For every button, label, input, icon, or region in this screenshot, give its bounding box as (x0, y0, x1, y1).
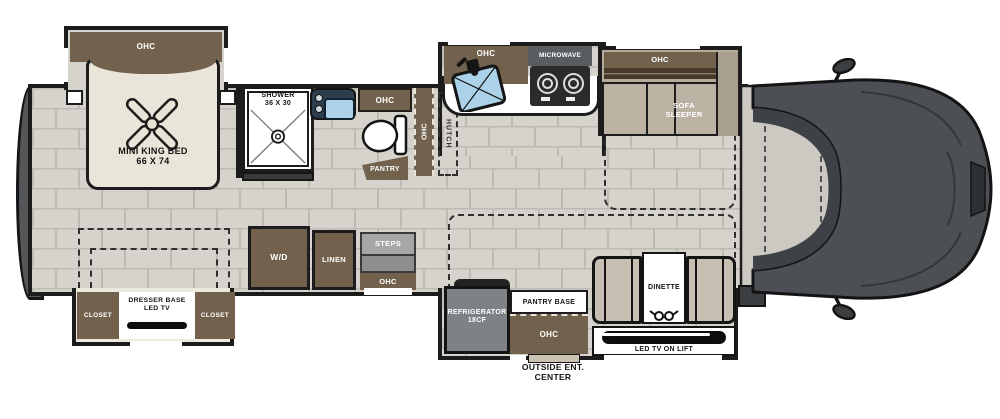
cooktop-knob-icon (566, 97, 575, 101)
entry-door-opening (364, 288, 412, 295)
bath-sink-icon (324, 98, 355, 120)
nightstand-right (219, 90, 236, 105)
kitchen-sink-icon (450, 56, 506, 112)
living-tv-screen (602, 333, 710, 336)
hall-ohc-cabinet: OHC (414, 88, 434, 176)
bath-vanity (310, 88, 356, 120)
cooktop (530, 66, 590, 106)
dresser-line2: LED TV (119, 305, 195, 313)
microwave-cabinet: MICROWAVE (528, 46, 592, 66)
entry-step-lower (360, 256, 416, 273)
burner-icon (563, 73, 584, 94)
shower-sill (242, 172, 314, 181)
nightstand-left (66, 90, 83, 105)
bath-ohc-cabinet: OHC (358, 88, 412, 112)
refrigerator: REFRIGERATOR 18CF (444, 286, 510, 354)
outside-line2: CENTER (498, 373, 608, 383)
dresser-slide-window (130, 341, 182, 347)
sofa-backrest (604, 68, 716, 82)
sofa-armrest (716, 52, 738, 136)
entry-steps: STEPS (360, 232, 416, 256)
galley-window (510, 355, 526, 362)
hall-ohc-label: OHC (416, 88, 432, 176)
faucet-knob-icon (315, 105, 323, 113)
tv-lift-label: LED TV ON LIFT (594, 346, 734, 354)
shower-label: SHOWER 36 X 30 (242, 92, 314, 108)
closet-right: CLOSET (195, 292, 235, 339)
bedroom-tv-icon (127, 322, 187, 329)
bed-slide-travel-outline-inner (90, 248, 218, 288)
shower-name: SHOWER (242, 92, 314, 100)
bedroom-slide-window-left (62, 48, 68, 82)
faucet-knob-icon (315, 94, 323, 102)
cab (735, 58, 1000, 320)
washer-dryer: W/D (248, 226, 310, 290)
sofa-slide-travel-outline (604, 136, 736, 210)
linen-cabinet: LINEN (312, 230, 356, 290)
dresser-base: DRESSER BASE LED TV (119, 292, 195, 339)
bed-label: MINI KING BED 66 X 74 (86, 146, 220, 167)
dinette-label: DINETTE (634, 284, 694, 292)
galley-ohc-cabinet: OHC (510, 314, 588, 354)
shower-size: 36 X 30 (242, 100, 314, 108)
tv-lift-window (604, 355, 722, 362)
pantry-base-cabinet: PANTRY BASE (510, 290, 588, 314)
kitchen-window (448, 40, 510, 45)
cooktop-knob-icon (541, 97, 550, 101)
dresser-line1: DRESSER BASE (119, 297, 195, 305)
sofa-line2: SLEEPER (652, 111, 716, 120)
bed-size: 66 X 74 (86, 156, 220, 166)
rv-floorplan: OHC MINI KING BED 66 X 74 SHOWER 36 (0, 0, 1000, 419)
galley-exterior-panel (528, 354, 580, 363)
cup-holders-icon (648, 310, 680, 324)
front-grille (971, 162, 985, 216)
sofa-ohc-cabinet: OHC (604, 52, 716, 68)
refrigerator-line2: 18CF (447, 317, 507, 325)
closet-left: CLOSET (77, 292, 119, 339)
refrigerator-line1: REFRIGERATOR (447, 309, 507, 317)
shower-drain-icon (272, 130, 284, 142)
sofa-window (616, 44, 700, 49)
burner-icon (537, 73, 558, 94)
tv-lift-cabinet: LED TV ON LIFT (592, 326, 736, 356)
toilet-icon (360, 112, 412, 160)
sofa-label: SOFA SLEEPER (652, 102, 716, 119)
bedroom-slide-window-right (224, 48, 230, 82)
outside-entertainment-label: OUTSIDE ENT. CENTER (498, 363, 608, 383)
bed-name: MINI KING BED (86, 146, 220, 156)
